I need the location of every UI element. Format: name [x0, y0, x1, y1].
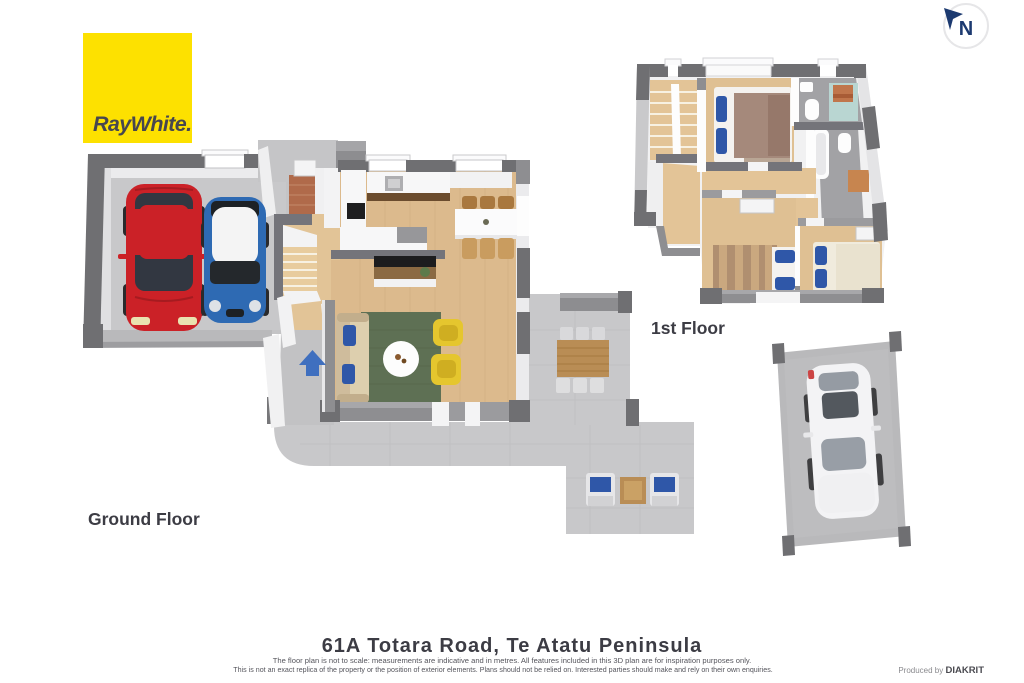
svg-text:RayWhite.: RayWhite.: [93, 112, 192, 136]
svg-text:1st Floor: 1st Floor: [651, 318, 725, 338]
svg-text:Produced by DIAKRIT: Produced by DIAKRIT: [898, 665, 984, 676]
svg-text:61A Totara Road, Te Atatu Peni: 61A Totara Road, Te Atatu Peninsula: [322, 635, 703, 657]
svg-text:The floor plan is not to scale: The floor plan is not to scale: measurem…: [273, 656, 752, 665]
svg-text:Ground Floor: Ground Floor: [88, 509, 200, 529]
svg-text:This is not an exact replica o: This is not an exact replica of the prop…: [233, 666, 772, 674]
svg-text:N: N: [959, 18, 973, 40]
